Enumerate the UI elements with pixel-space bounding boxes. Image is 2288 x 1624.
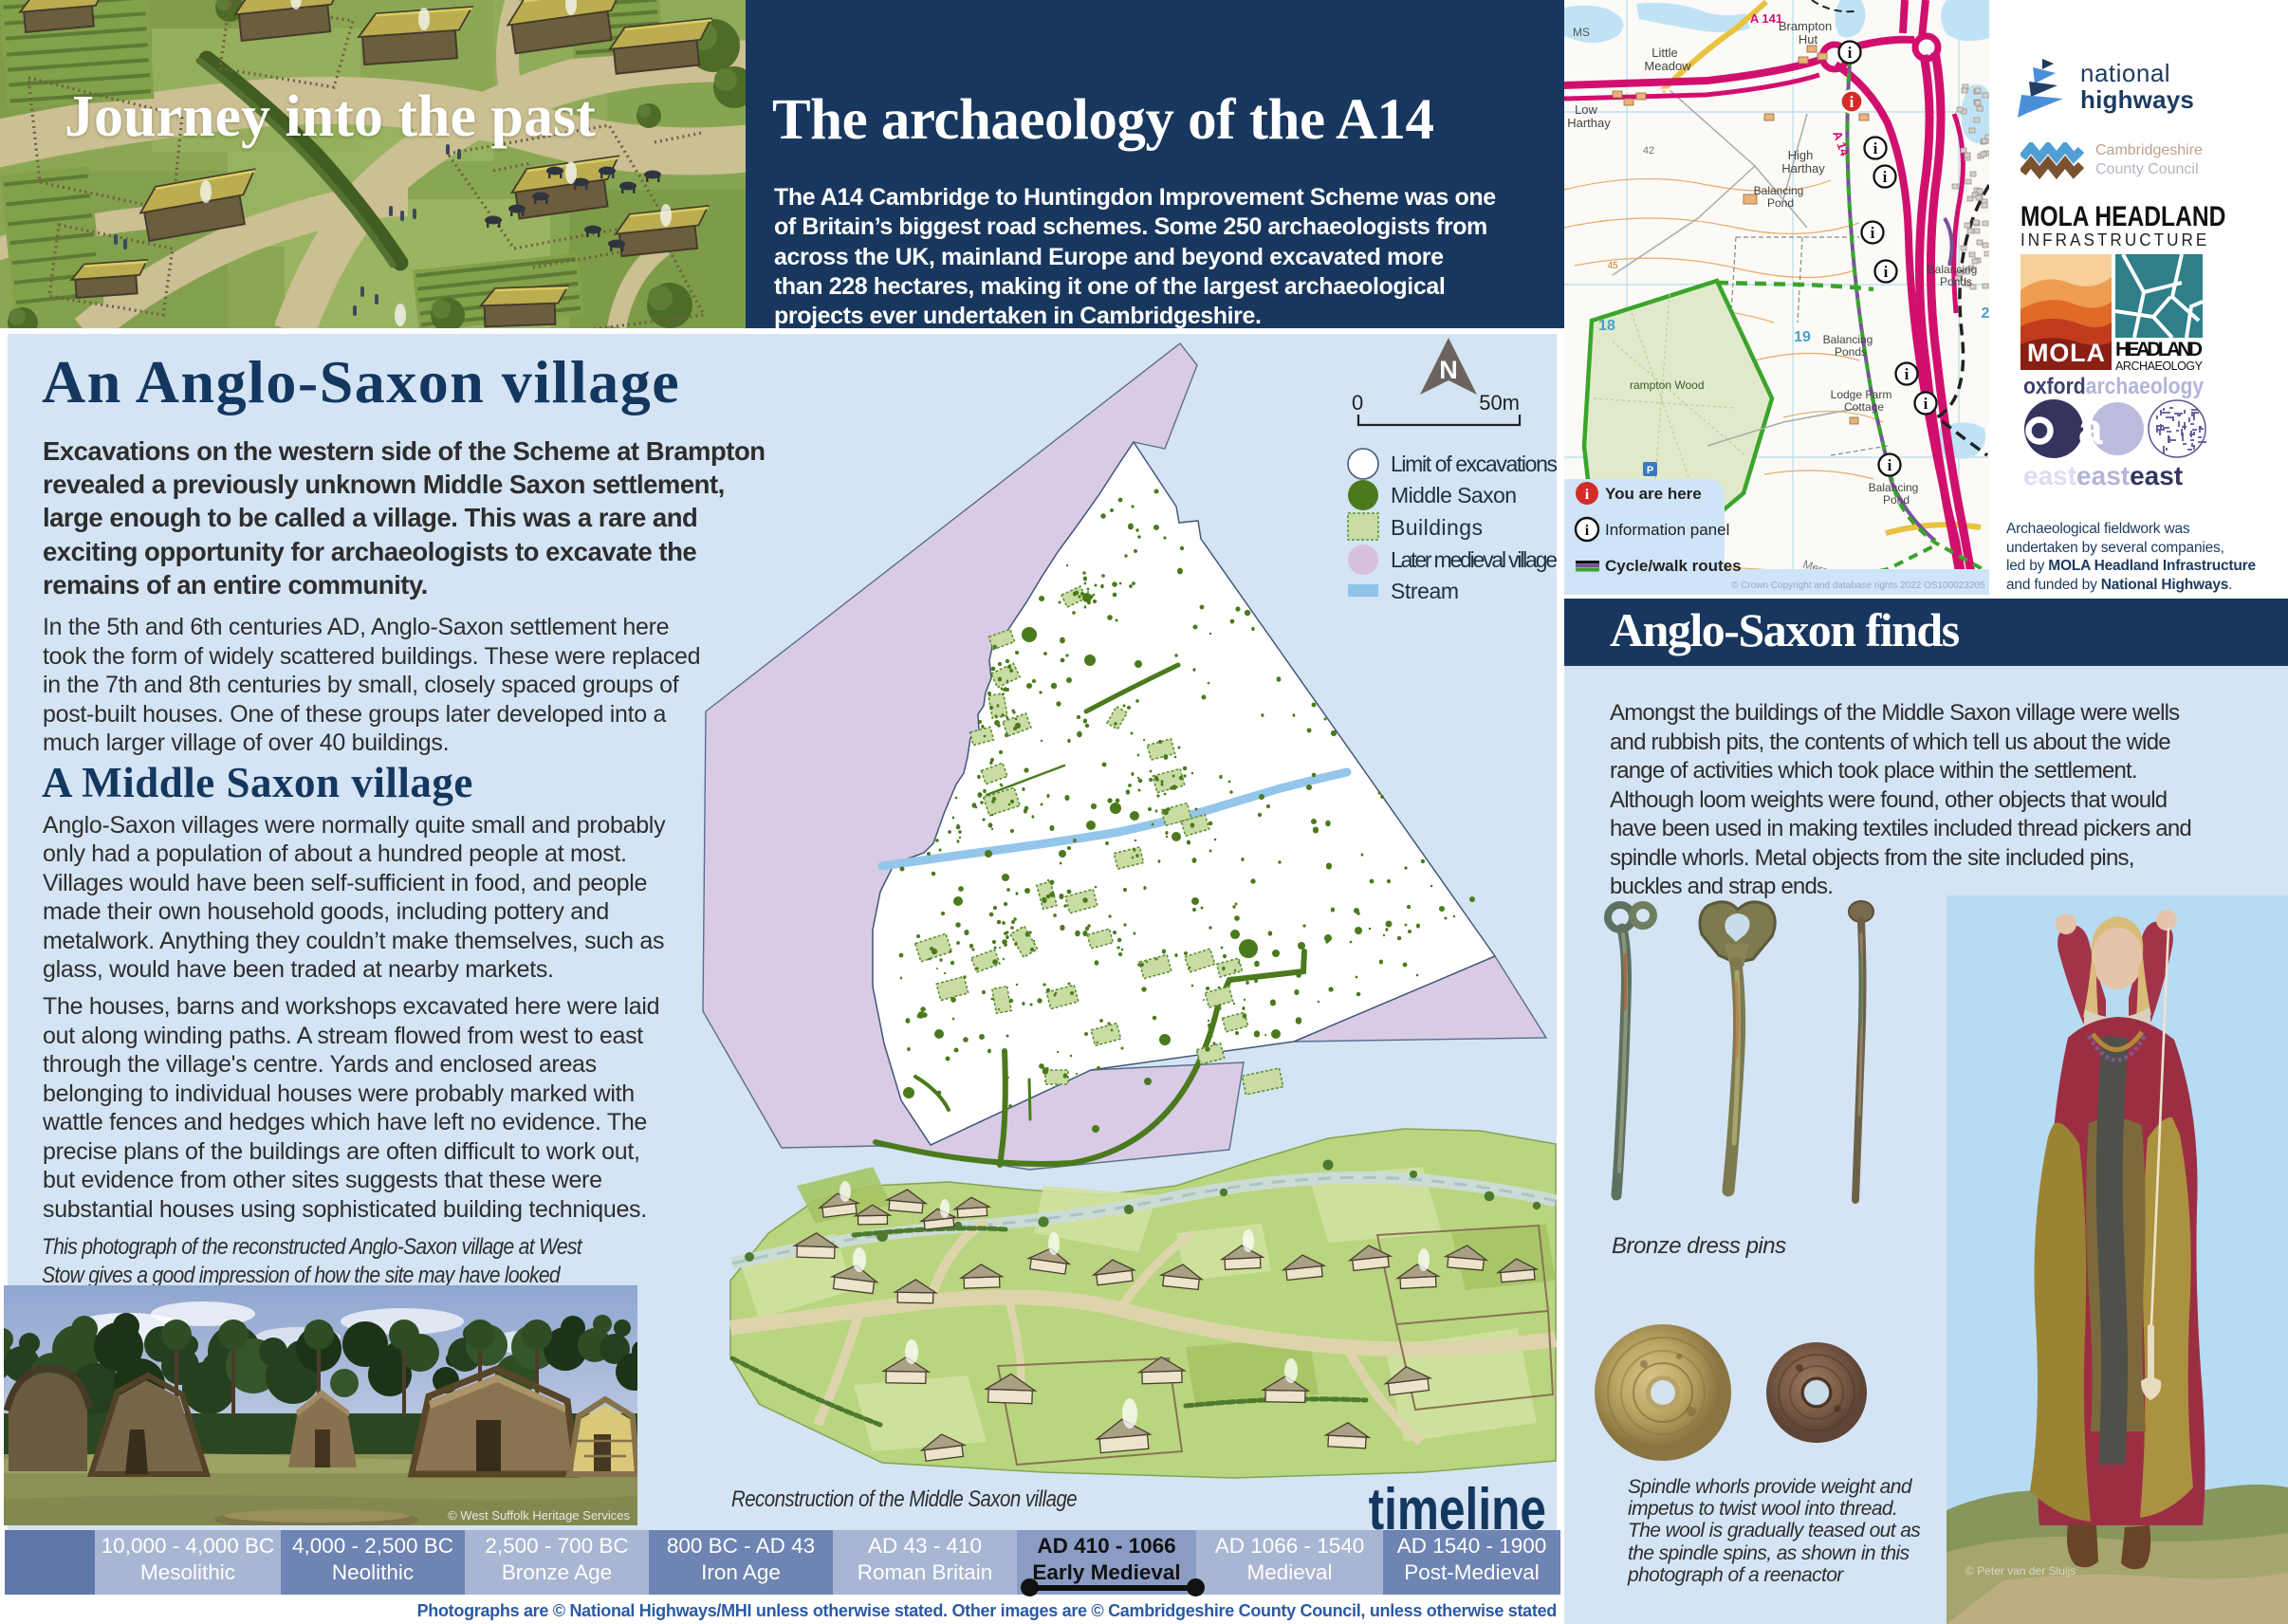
- svg-text:Information panel: Information panel: [1605, 521, 1729, 539]
- svg-text:19: 19: [1794, 329, 1811, 345]
- svg-text:50m: 50m: [1479, 391, 1520, 415]
- svg-text:Cycle/walk routes: Cycle/walk routes: [1605, 557, 1742, 575]
- svg-text:Stream: Stream: [1391, 579, 1459, 603]
- svg-text:Cottage: Cottage: [1844, 400, 1884, 414]
- svg-text:N: N: [1439, 356, 1458, 384]
- svg-text:i: i: [1883, 168, 1888, 186]
- svg-text:Balancing: Balancing: [1754, 184, 1804, 197]
- svg-text:i: i: [1924, 395, 1928, 413]
- svg-text:Buildings: Buildings: [1391, 515, 1483, 540]
- svg-text:Meadow: Meadow: [1644, 59, 1691, 73]
- svg-text:High: High: [1788, 148, 1814, 162]
- svg-text:Harthay: Harthay: [1781, 161, 1825, 175]
- svg-text:A 141: A 141: [1750, 11, 1782, 26]
- svg-text:Harthay: Harthay: [1567, 116, 1611, 130]
- svg-text:rampton Wood: rampton Wood: [1630, 378, 1705, 392]
- svg-text:© West Suffolk Heritage Servic: © West Suffolk Heritage Services: [448, 1508, 630, 1522]
- svg-text:Pond: Pond: [1767, 196, 1794, 210]
- svg-text:Pond: Pond: [1883, 493, 1910, 507]
- svg-text:Lodge Farm: Lodge Farm: [1831, 388, 1892, 401]
- svg-text:MS: MS: [1573, 26, 1590, 39]
- svg-text:Later medieval village: Later medieval village: [1391, 547, 1558, 572]
- svg-text:You are here: You are here: [1605, 485, 1702, 503]
- svg-text:P: P: [1647, 465, 1653, 476]
- svg-text:i: i: [1884, 263, 1889, 281]
- svg-text:i: i: [1850, 93, 1854, 111]
- svg-text:Little: Little: [1651, 46, 1677, 60]
- svg-text:i: i: [1848, 44, 1853, 62]
- svg-text:i: i: [1873, 139, 1878, 157]
- svg-text:© Crown Copyright and database: © Crown Copyright and database rights 20…: [1731, 581, 1985, 591]
- svg-text:Low: Low: [1575, 102, 1597, 117]
- svg-text:18: 18: [1598, 318, 1615, 334]
- svg-text:i: i: [1871, 224, 1875, 242]
- svg-text:Hut: Hut: [1799, 32, 1818, 46]
- svg-text:0: 0: [1352, 391, 1363, 415]
- svg-text:a: a: [2078, 404, 2103, 453]
- svg-text:Ponds: Ponds: [1835, 345, 1867, 359]
- svg-text:2: 2: [1982, 305, 1989, 322]
- svg-text:Middle Saxon: Middle Saxon: [1391, 483, 1517, 507]
- svg-text:Balancing: Balancing: [1869, 481, 1919, 494]
- svg-text:Balancing: Balancing: [1928, 263, 1978, 276]
- svg-text:© Peter van der Sluijs: © Peter van der Sluijs: [1965, 1564, 2076, 1578]
- svg-text:Brampton: Brampton: [1779, 19, 1832, 33]
- svg-text:Balancing: Balancing: [1823, 333, 1873, 346]
- svg-text:HEADLAND: HEADLAND: [2115, 339, 2203, 360]
- svg-text:MOLA: MOLA: [2027, 339, 2105, 367]
- svg-text:i: i: [1905, 365, 1910, 383]
- svg-text:ARCHAEOLOGY: ARCHAEOLOGY: [2115, 360, 2203, 372]
- svg-text:Ponds: Ponds: [1940, 275, 1972, 288]
- svg-text:i: i: [1585, 523, 1590, 539]
- svg-text:45: 45: [1607, 261, 1618, 271]
- svg-text:Limit of excavations: Limit of excavations: [1391, 452, 1558, 476]
- svg-text:i: i: [1585, 487, 1590, 503]
- svg-text:42: 42: [1643, 145, 1654, 157]
- svg-text:i: i: [1888, 456, 1892, 474]
